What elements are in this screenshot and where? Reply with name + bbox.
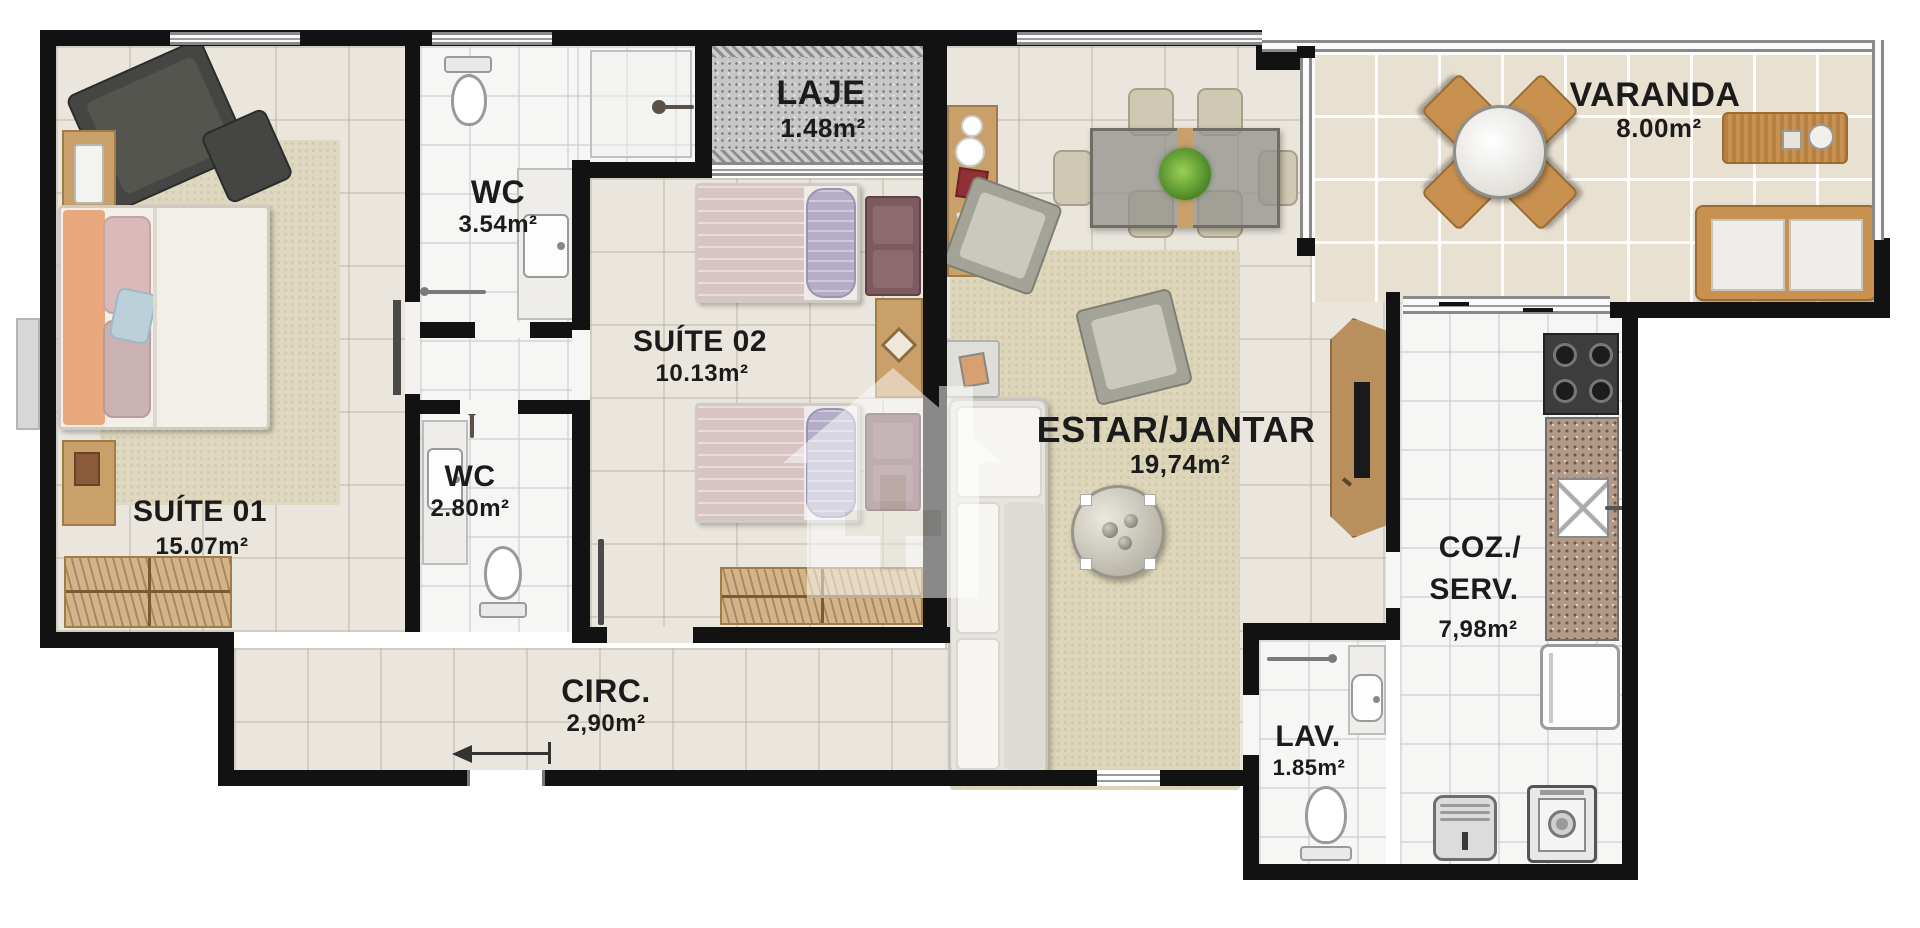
decor-ball: [1118, 536, 1132, 550]
varanda-rail-top: [1262, 40, 1884, 52]
watermark-logo: [783, 368, 1003, 623]
window-kitchen-varanda: [1403, 296, 1610, 314]
decor-ball: [1102, 522, 1118, 538]
varanda-round-table: [1453, 105, 1547, 199]
floor-plan: SUÍTE 01 15.07m² WC 3.54m² WC 2.80m² SUÍ…: [0, 0, 1920, 928]
wall-suite01-bottom: [40, 632, 234, 648]
wall-suite02-top: [572, 162, 712, 178]
room-label-lav: LAV.: [1275, 722, 1340, 752]
varanda-sofa: [1695, 205, 1877, 301]
entry-arrow: [470, 752, 550, 755]
door-gap-kitchen: [1386, 552, 1400, 608]
room-area-circ: 2,90m²: [566, 712, 645, 736]
room-area-varanda: 8.00m²: [1616, 115, 1701, 141]
nightstand-icon: [62, 440, 116, 526]
plant-icon: [1159, 148, 1211, 200]
room-area-estar: 19,74m²: [1130, 451, 1230, 477]
window-wc1: [432, 32, 552, 45]
plate-decor: [961, 115, 983, 137]
wall-kitchen-right: [1622, 302, 1638, 880]
room-area-laje: 1.48m²: [780, 115, 865, 141]
laundry-tub-icon: [1433, 795, 1497, 861]
tray-decor: [1808, 124, 1834, 150]
room-label-circ: CIRC.: [561, 675, 651, 707]
tv-icon: [1354, 382, 1370, 478]
slider-estar-varanda: [1300, 55, 1312, 245]
window-suite01: [170, 32, 300, 45]
laje-edge-bottom: [712, 150, 927, 162]
shower-enclosure: [590, 50, 692, 158]
room-area-lav: 1.85m²: [1273, 757, 1346, 779]
toilet-icon: [451, 74, 487, 126]
room-label-suite01: SUÍTE 01: [133, 497, 267, 527]
entry-arrow-head: [452, 745, 472, 763]
door-gap-wc1: [475, 322, 530, 338]
room-area-suite01: 15.07m²: [156, 535, 249, 559]
room-label-suite02: SUÍTE 02: [633, 327, 767, 357]
towel-bar-end: [420, 287, 429, 296]
service-door-gap: [1097, 770, 1160, 786]
room-label-laje: LAJE: [777, 76, 866, 110]
slider-stub-top: [1297, 46, 1315, 58]
room-area-wc1: 3.54m²: [458, 213, 537, 237]
room-label-coz-2: SERV.: [1429, 575, 1518, 605]
headboard-bench: [865, 196, 921, 296]
room-area-wc2: 2.80m²: [430, 497, 509, 521]
toilet-icon: [1305, 786, 1347, 844]
pillow-lilac-roll: [806, 188, 856, 298]
fridge-icon: [1540, 644, 1620, 730]
room-area-suite02: 10.13m²: [656, 362, 749, 386]
exterior-ledge: [16, 318, 40, 430]
washer-icon: [1527, 785, 1597, 863]
plate-decor: [955, 137, 985, 167]
wall-lav-top: [1243, 623, 1400, 640]
room-label-wc1: WC: [471, 176, 525, 208]
door-gap-suite02: [572, 330, 590, 400]
towel-bar-end: [1328, 654, 1337, 663]
dining-chair: [1053, 150, 1093, 206]
shower-arm: [664, 105, 694, 109]
coffee-table-round: [1071, 485, 1165, 579]
laje-sill-window: [712, 162, 927, 176]
wall-circ-bottom: [218, 770, 1243, 786]
door-gap-suite02-bottom: [607, 627, 693, 643]
toilet-icon: [479, 602, 527, 618]
wall-shower-right: [695, 30, 712, 162]
towel-bar-icon: [1267, 657, 1331, 661]
toilet-icon: [484, 546, 522, 600]
toilet-icon: [1300, 846, 1352, 861]
room-label-wc2: WC: [445, 462, 496, 492]
wardrobe-icon: [64, 556, 232, 628]
duvet-fold: [153, 208, 157, 427]
varanda-rail-right: [1872, 40, 1884, 240]
decor-ball: [1124, 514, 1138, 528]
entry-door-gap: [467, 770, 545, 786]
door-gap-lav: [1243, 695, 1259, 755]
window-estar: [1017, 32, 1262, 45]
suite02-bed-1: [695, 183, 860, 303]
room-label-coz-1: COZ./: [1439, 533, 1522, 563]
door-gap-suite01: [405, 302, 420, 394]
slider-stub-bottom: [1297, 238, 1315, 256]
toilet-icon: [444, 56, 492, 73]
towel-bar-icon: [424, 290, 486, 294]
bedspread-orange: [63, 210, 105, 425]
room-label-estar: ESTAR/JANTAR: [1037, 412, 1316, 448]
sink-icon: [1351, 674, 1383, 722]
duvet-mauve: [698, 186, 804, 300]
wall-kitchen-bottom: [1243, 864, 1638, 880]
wall-varanda-bottom: [1610, 302, 1890, 318]
wall-left: [40, 30, 56, 648]
laje-edge-top: [712, 46, 927, 57]
kitchen-sink-icon: [1557, 478, 1609, 538]
door-leaf-suite01: [393, 300, 401, 395]
wall-varanda-right-stub: [1874, 238, 1890, 318]
suite02-door-leaf: [598, 539, 604, 625]
wall-circ-left: [218, 648, 234, 786]
tv-panel: [1330, 318, 1388, 538]
entry-arrow-tick: [548, 742, 551, 764]
stove-icon: [1543, 333, 1619, 415]
suite01-bed: [58, 205, 270, 430]
room-label-varanda: VARANDA: [1570, 78, 1741, 112]
tray-decor: [1782, 130, 1802, 150]
door-gap-wc2: [460, 400, 518, 414]
varanda-coffee-table: [1722, 112, 1848, 164]
room-area-coz: 7,98m²: [1438, 618, 1517, 642]
